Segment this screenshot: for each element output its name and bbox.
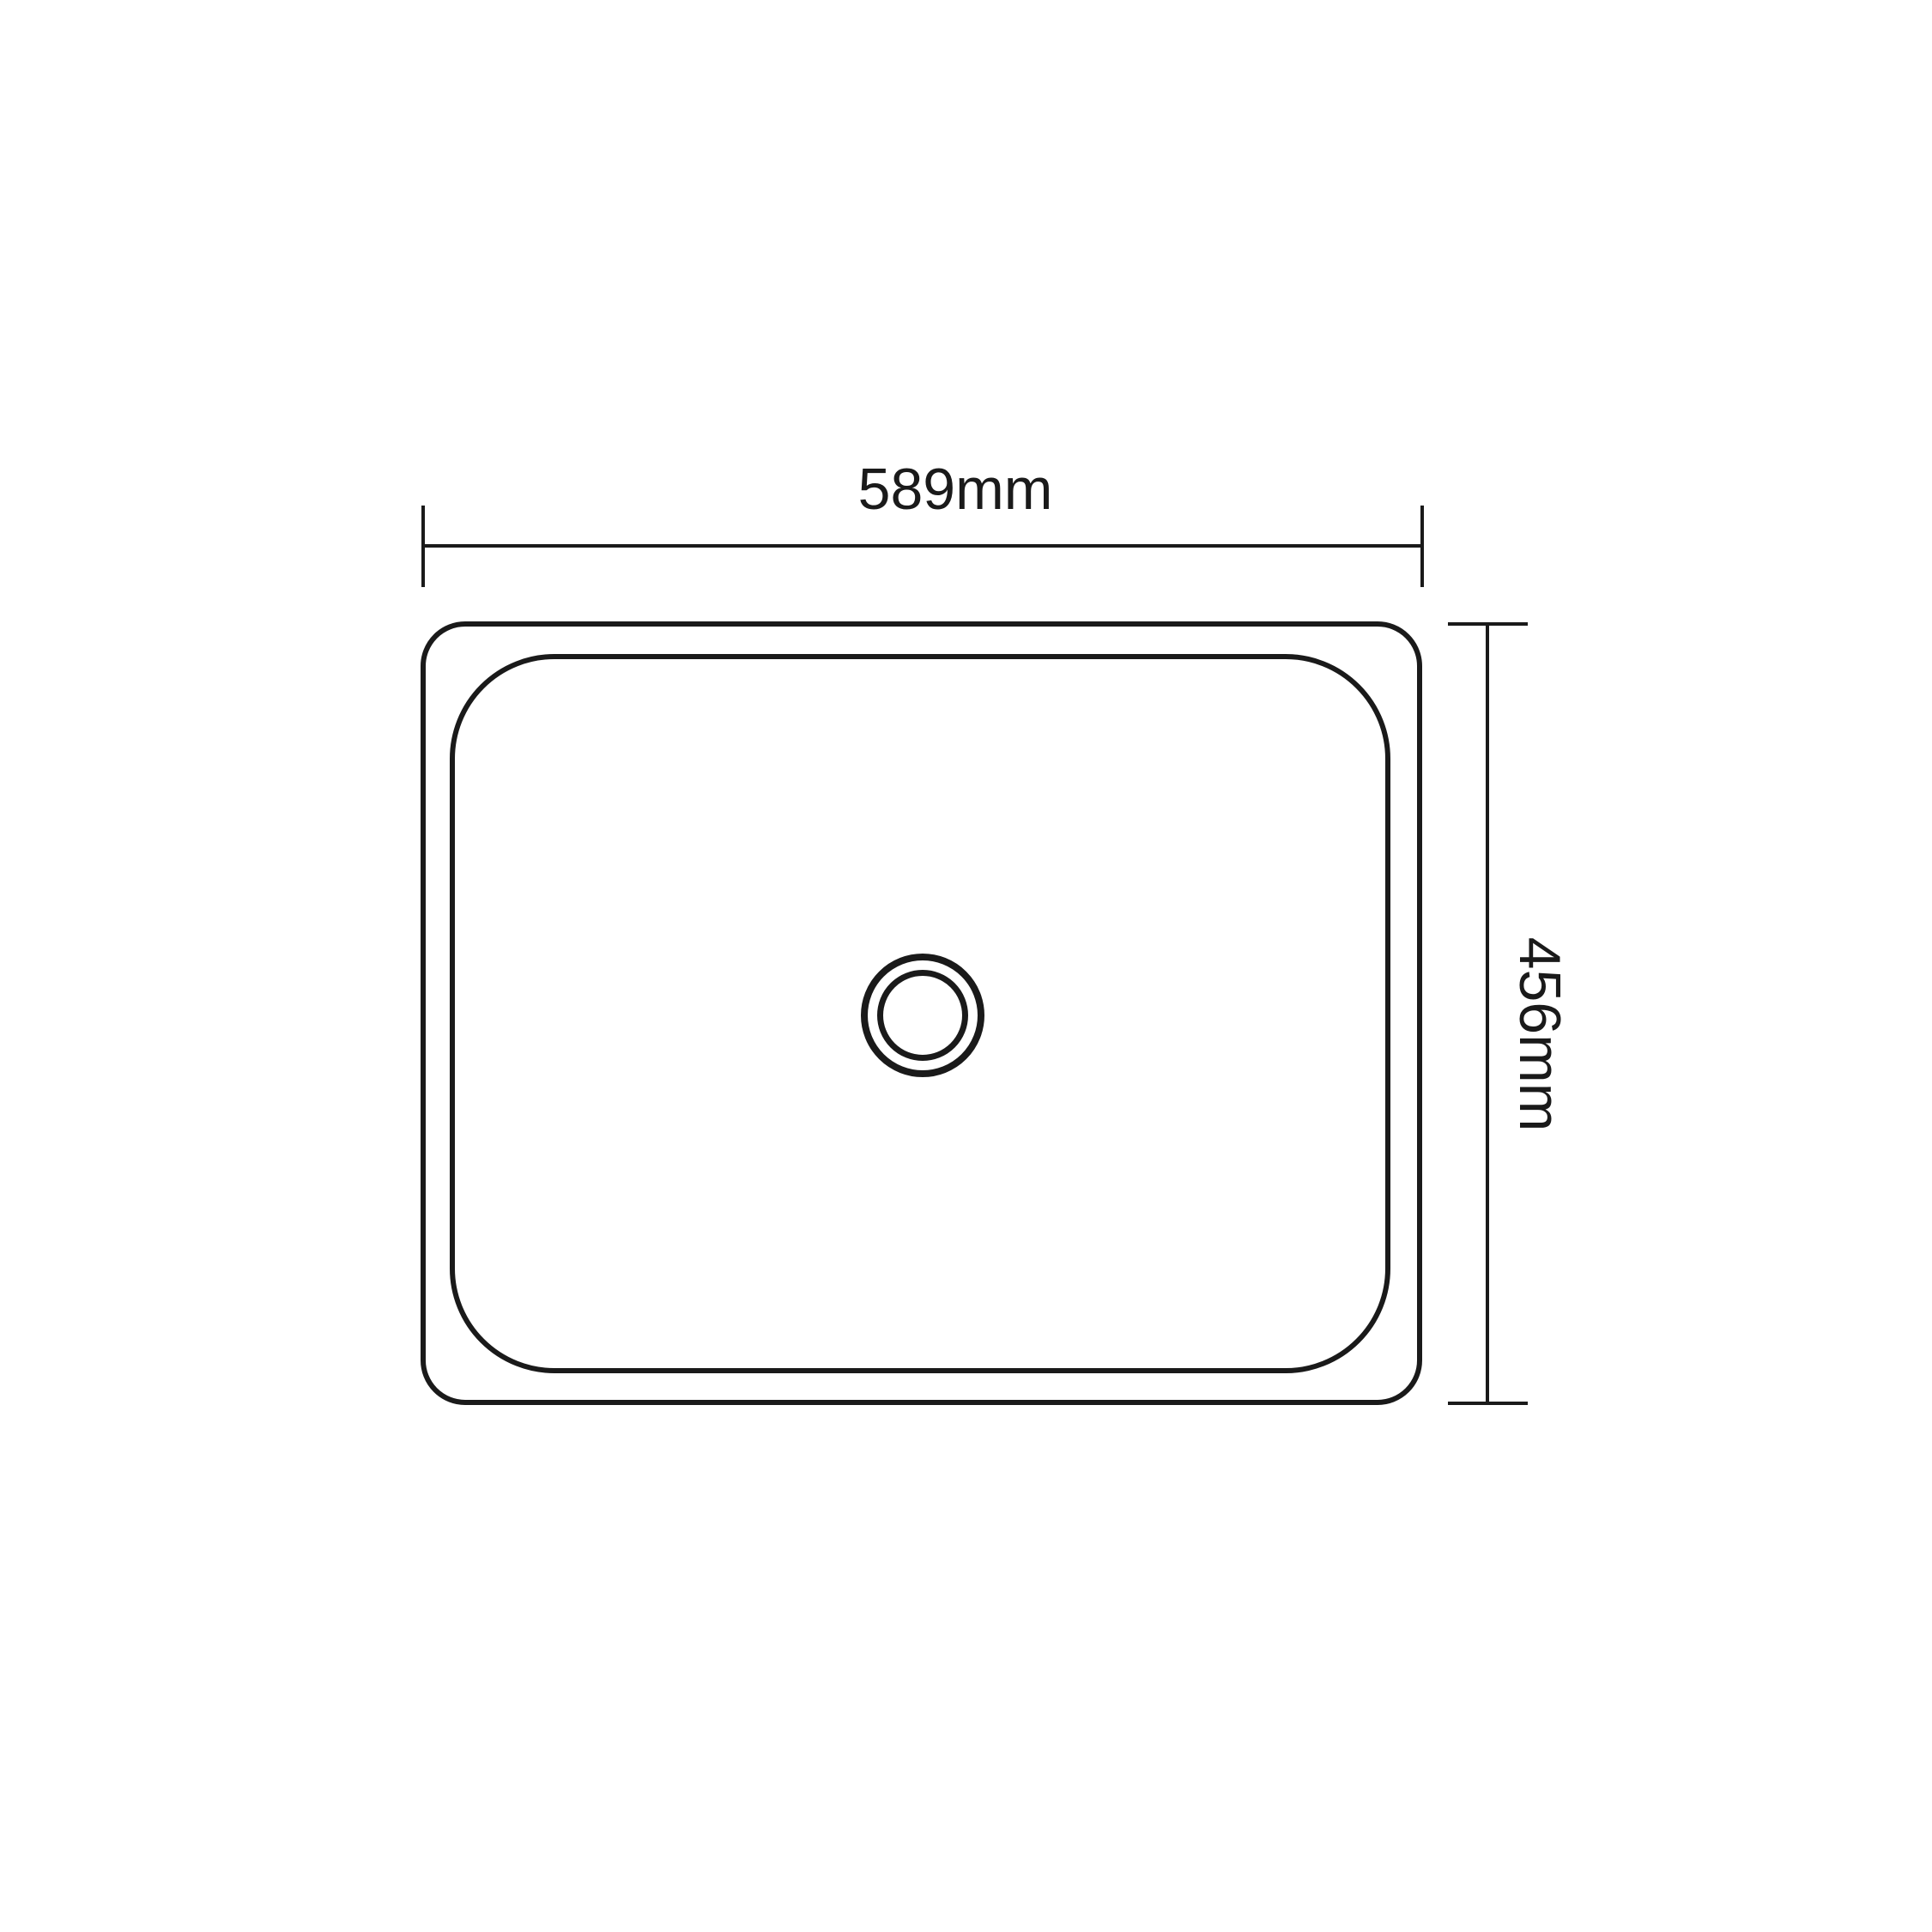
height-dimension-tick-bottom: [1448, 1402, 1528, 1405]
width-dimension-line: [423, 544, 1422, 548]
height-dimension-line: [1486, 624, 1489, 1405]
drain-inner-ring-icon: [877, 970, 968, 1061]
width-dimension-tick-left: [421, 506, 425, 587]
width-dimension-label: 589mm: [858, 460, 1053, 518]
height-dimension-tick-top: [1448, 622, 1528, 626]
width-dimension-tick-right: [1420, 506, 1424, 587]
drawing-canvas: 589mm 456mm: [0, 0, 1932, 1932]
height-dimension-label: 456mm: [1511, 937, 1569, 1132]
